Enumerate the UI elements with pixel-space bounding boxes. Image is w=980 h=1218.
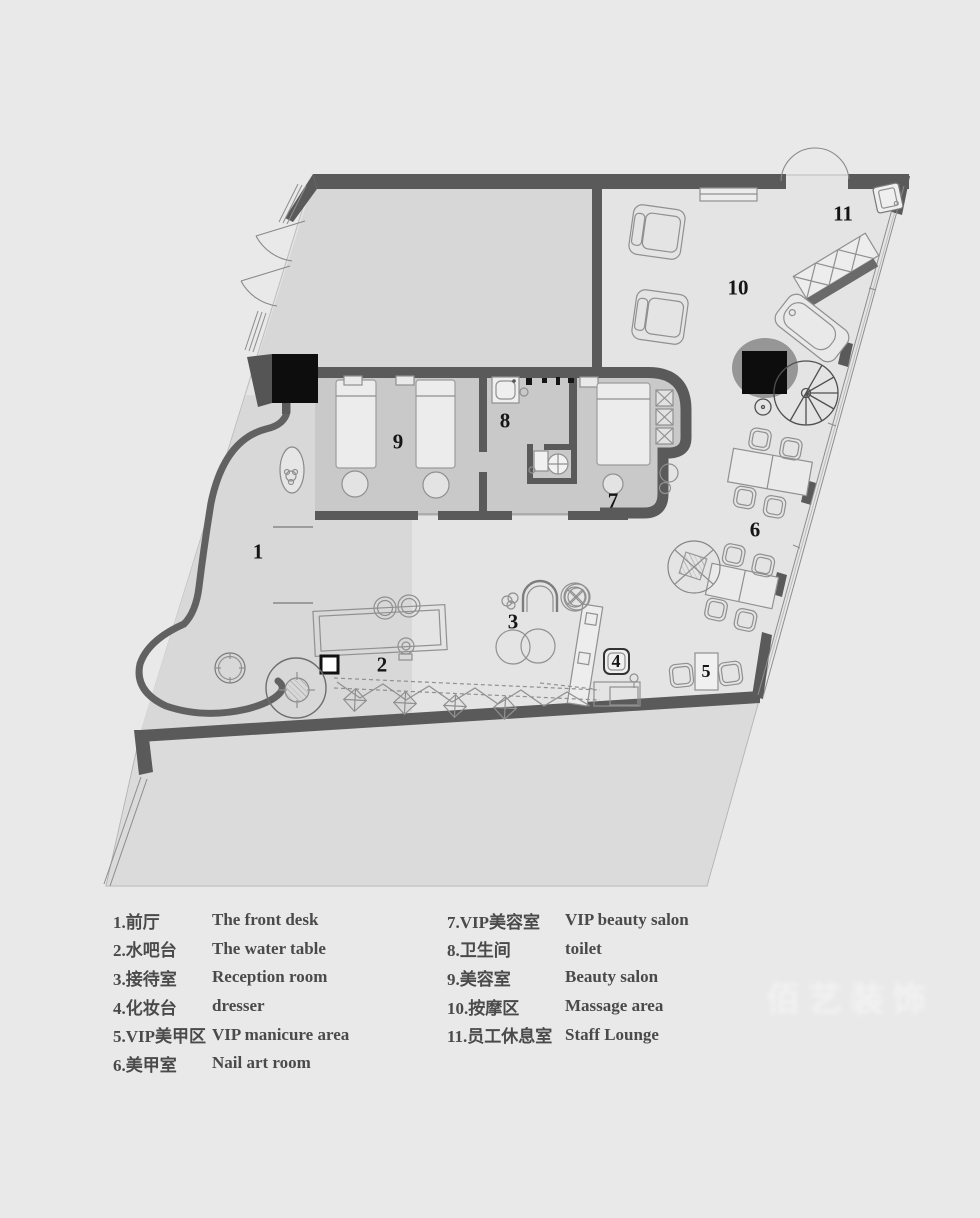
door-swing-arc — [815, 148, 849, 179]
room-label-10: 10 — [728, 278, 749, 299]
wall-strip-top — [278, 367, 650, 378]
floor-fills — [106, 175, 905, 886]
legend-column-right: 7.VIP美容室VIP beauty salon 8.卫生间toilet 9.美… — [447, 906, 807, 1049]
legend-zh: 4.化妆台 — [113, 994, 212, 1019]
legend-en: toilet — [565, 939, 602, 959]
wall-bigroom-right — [592, 183, 602, 375]
room-label-5: 5 — [702, 662, 711, 680]
room-label-4: 4 — [612, 652, 621, 670]
legend-row: 5.VIP美甲区VIP manicure area — [113, 1020, 443, 1049]
cabinet — [700, 188, 757, 201]
egg-chair — [280, 447, 304, 493]
legend-zh: 5.VIP美甲区 — [113, 1022, 212, 1047]
floor-plan-page: 1 2 3 4 5 6 7 8 9 10 11 佰艺装饰 1.前厅The fro… — [0, 0, 980, 1218]
legend-row: 11.员工休息室Staff Lounge — [447, 1020, 807, 1049]
legend-row: 10.按摩区Massage area — [447, 992, 807, 1021]
legend-row: 3.接待室Reception room — [113, 963, 443, 992]
legend-column-left: 1.前厅The front desk 2.水吧台The water table … — [113, 906, 443, 1078]
room-label-2: 2 — [377, 655, 388, 676]
legend-zh: 1.前厅 — [113, 908, 212, 933]
legend-zh: 6.美甲室 — [113, 1051, 212, 1076]
legend-en: dresser — [212, 996, 265, 1016]
floor-unit — [321, 656, 338, 673]
wall-top — [313, 174, 786, 189]
legend-en: VIP beauty salon — [565, 910, 689, 930]
legend-en: The front desk — [212, 910, 318, 930]
legend-zh: 8.卫生间 — [447, 936, 565, 961]
legend-row: 6.美甲室Nail art room — [113, 1049, 443, 1078]
stool — [423, 472, 449, 498]
legend-row: 1.前厅The front desk — [113, 906, 443, 935]
room-label-3: 3 — [508, 612, 519, 633]
legend-zh: 2.水吧台 — [113, 936, 212, 961]
room-label-6: 6 — [750, 520, 761, 541]
legend-zh: 7.VIP美容室 — [447, 908, 565, 933]
door-swing-arc — [241, 281, 277, 306]
legend-row: 4.化妆台dresser — [113, 992, 443, 1021]
small-appliance — [873, 183, 904, 214]
wall-divider-8-7 — [569, 378, 577, 448]
legend-zh: 10.按摩区 — [447, 994, 565, 1019]
shower-cubicle-fittings — [529, 451, 568, 474]
room-label-8: 8 — [500, 411, 511, 432]
legend-zh: 9.美容室 — [447, 965, 565, 990]
door-swing-arc — [256, 236, 292, 261]
legend-row: 7.VIP美容室VIP beauty salon — [447, 906, 807, 935]
wall-fixture — [580, 377, 598, 387]
legend-row: 2.水吧台The water table — [113, 935, 443, 964]
black-column-2 — [742, 351, 787, 394]
wall-fixture — [344, 376, 362, 385]
black-column-1 — [272, 354, 318, 403]
legend-en: Nail art room — [212, 1053, 311, 1073]
legend-en: Massage area — [565, 996, 663, 1016]
legend-row: 8.卫生间toilet — [447, 935, 807, 964]
legend-en: VIP manicure area — [212, 1025, 349, 1045]
legend-en: Staff Lounge — [565, 1025, 659, 1045]
shelf-squares — [656, 390, 673, 444]
room-label-11: 11 — [833, 204, 853, 225]
legend-zh: 11.员工休息室 — [447, 1022, 565, 1047]
wall-divider-9-8 — [479, 378, 487, 452]
vip-bed — [597, 383, 650, 465]
round-chair — [564, 584, 590, 610]
room-label-9: 9 — [393, 432, 404, 453]
legend-en: Reception room — [212, 967, 327, 987]
legend-row: 9.美容室Beauty salon — [447, 963, 807, 992]
room-label-1: 1 — [253, 542, 264, 563]
legend-en: The water table — [212, 939, 326, 959]
legend-en: Beauty salon — [565, 967, 658, 987]
sink — [492, 377, 519, 403]
legend-zh: 3.接待室 — [113, 965, 212, 990]
wall-fixture — [396, 376, 414, 385]
room-label-7: 7 — [608, 491, 619, 512]
stool — [342, 471, 368, 497]
